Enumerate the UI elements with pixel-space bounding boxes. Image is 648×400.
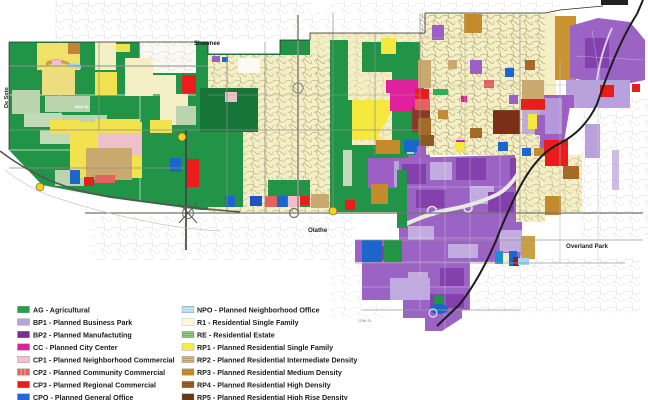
svg-text:RP1 - Planned Residential Sing: RP1 - Planned Residential Single Family [197, 344, 333, 352]
svg-text:BP2 - Planned Manufactuting: BP2 - Planned Manufactuting [33, 331, 132, 339]
svg-text:De Soto: De Soto [4, 87, 10, 108]
svg-text:CPO - Planned General Office: CPO - Planned General Office [33, 394, 133, 400]
svg-text:BP1 - Planned Business Park: BP1 - Planned Business Park [33, 319, 132, 327]
svg-text:RP2 - Planned Residential Inte: RP2 - Planned Residential Intermediate D… [197, 356, 357, 364]
svg-text:R1 - Residential Single Family: R1 - Residential Single Family [197, 319, 299, 327]
svg-text:RP4 - Planned Residential High: RP4 - Planned Residential High Density [197, 381, 331, 389]
svg-text:Overland Park: Overland Park [566, 243, 609, 250]
svg-text:Olathe: Olathe [308, 227, 328, 234]
svg-text:Shawnee: Shawnee [194, 41, 221, 47]
svg-text:NPO - Planned Neighborhood Off: NPO - Planned Neighborhood Office [197, 306, 320, 314]
svg-text:CC - Planned City Center: CC - Planned City Center [33, 344, 118, 352]
svg-text:CP3 - Planned Regional Commerc: CP3 - Planned Regional Commercial [33, 381, 156, 389]
svg-text:RP5 - Planned Residential High: RP5 - Planned Residential High Rise Dens… [197, 394, 348, 400]
svg-text:RP3 - Planned Residential Medi: RP3 - Planned Residential Medium Density [197, 369, 342, 377]
svg-text:RE - Residential Estate: RE - Residential Estate [197, 331, 275, 339]
svg-text:119th St: 119th St [358, 319, 371, 323]
svg-text:AG - Agricultural: AG - Agricultural [33, 306, 90, 314]
svg-text:CP1 - Planned Neighborhood Com: CP1 - Planned Neighborhood Commercial [33, 356, 175, 364]
svg-text:83rd St: 83rd St [75, 104, 89, 109]
svg-text:CP2 - Planned Community Commer: CP2 - Planned Community Commercial [33, 369, 165, 377]
